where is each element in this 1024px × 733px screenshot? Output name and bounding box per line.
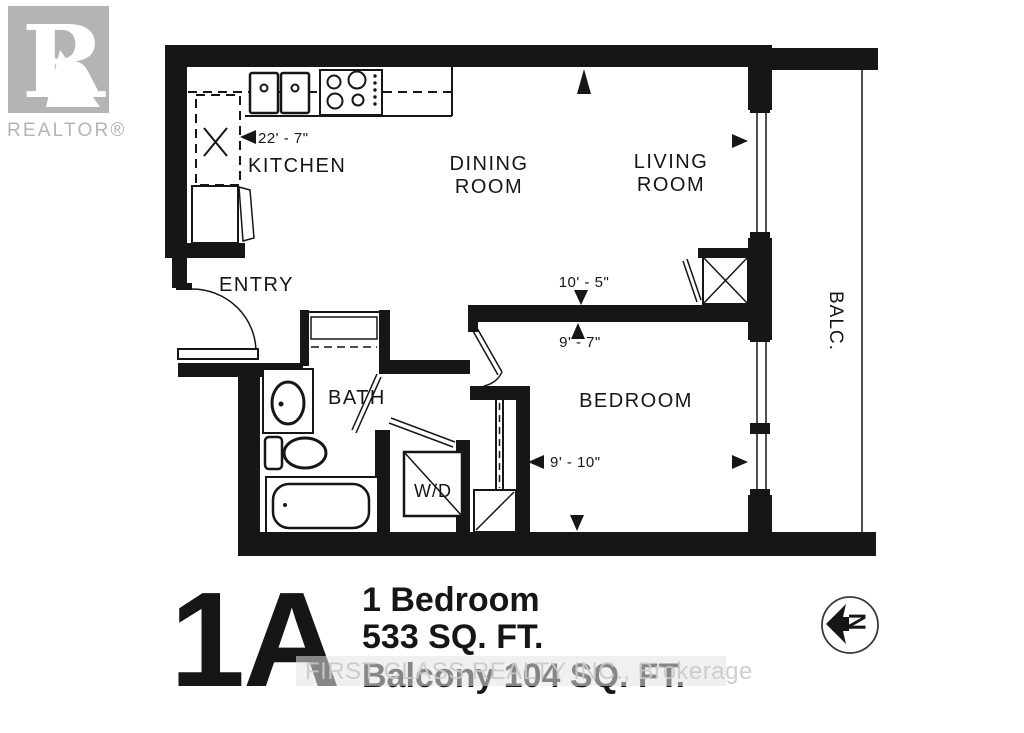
footer: 1A 1 Bedroom 533 SQ. FT. Balcony 104 SQ.… [170, 564, 685, 715]
wall-right-b [748, 238, 772, 340]
window-mullion [750, 423, 770, 434]
toilet-icon [265, 437, 326, 469]
wall-bedroom-closet-top [470, 386, 530, 400]
label-entry: ENTRY [219, 274, 294, 296]
floor-plan-drawing: R REALTOR® [0, 0, 1024, 733]
wall-kitchen-stub [165, 243, 245, 258]
window-cap-3 [750, 336, 770, 342]
label-living-1: LIVING [634, 151, 709, 173]
arrow-down-icon [574, 290, 588, 305]
wall-right-c [748, 495, 772, 533]
north-arrow-label: N [843, 613, 870, 630]
label-living-2: ROOM [637, 174, 705, 196]
window-cap-1 [750, 107, 770, 113]
label-bath: BATH [328, 387, 386, 409]
label-bedroom: BEDROOM [579, 390, 693, 412]
wall-bottom [238, 532, 876, 556]
entry-closet [300, 312, 390, 347]
label-washer-dryer: W/D [414, 481, 452, 501]
arrow-down-icon [570, 515, 584, 531]
wall-bedroom [468, 305, 770, 322]
dim-bedroom-depth: 9' - 7" [559, 334, 601, 351]
unit-code: 1A [170, 564, 339, 715]
arrow-left-icon [240, 130, 256, 144]
sliding-closet-icon [474, 400, 516, 532]
realtor-logo: R REALTOR® [7, 3, 127, 141]
entry-door-icon [178, 289, 258, 359]
dim-dining-depth: 10' - 5" [559, 274, 610, 291]
watermark: FIRST CLASS REALTY INC., Brokerage [296, 656, 753, 686]
dim-main-width: 22' - 7" [258, 130, 309, 147]
wall-entry-closet-left [300, 310, 309, 366]
stove-icon [320, 70, 382, 115]
arrow-up-icon [577, 69, 591, 94]
arrow-right-icon [732, 455, 748, 469]
label-dining-2: ROOM [455, 176, 523, 198]
footer-line1: 1 Bedroom [362, 581, 540, 619]
wall-bath-top-right [379, 360, 470, 374]
wd-door-icon [389, 418, 455, 447]
floor-plan-page: R REALTOR® [0, 0, 1024, 733]
window-cap-4 [750, 489, 770, 495]
pantry-x-icon [196, 95, 240, 185]
arrow-right-icon [732, 134, 748, 148]
wall-bedroom-closet-right [516, 400, 530, 533]
footer-line2: 533 SQ. FT. [362, 618, 543, 656]
realtor-wordmark: REALTOR® [7, 120, 127, 141]
wall-entry-hinge-nub [176, 283, 192, 290]
arrow-left-icon [528, 455, 544, 469]
north-arrow-icon: N [822, 597, 878, 653]
wall-bath-left [238, 363, 260, 533]
window-cap-2 [750, 232, 770, 238]
dim-bedroom-width: 9' - 10" [550, 454, 601, 471]
watermark-text: FIRST CLASS REALTY INC., Brokerage [305, 658, 753, 685]
wall-left [165, 45, 187, 258]
label-balcony: BALC. [825, 291, 846, 351]
fridge-icon [192, 186, 254, 243]
bathtub-icon [266, 477, 378, 533]
label-kitchen: KITCHEN [248, 155, 346, 177]
wall-right-a [748, 60, 772, 110]
wall-top [165, 45, 772, 67]
label-dining-1: DINING [450, 153, 529, 175]
hvac-closet-icon [683, 257, 748, 304]
bath-vanity-icon [263, 369, 313, 433]
